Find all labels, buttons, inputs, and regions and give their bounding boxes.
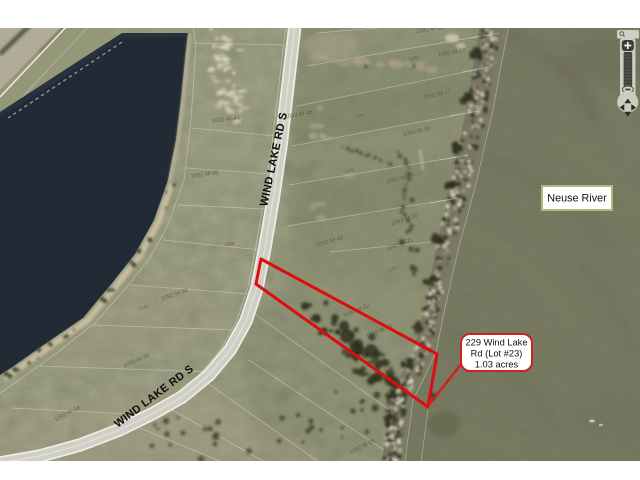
svg-text:229 Wind Lake: 229 Wind Lake: [465, 338, 527, 348]
svg-text:Neuse River: Neuse River: [547, 193, 607, 205]
svg-text:1.03 acres: 1.03 acres: [475, 360, 519, 370]
svg-text:Rd (Lot #23): Rd (Lot #23): [471, 349, 523, 359]
